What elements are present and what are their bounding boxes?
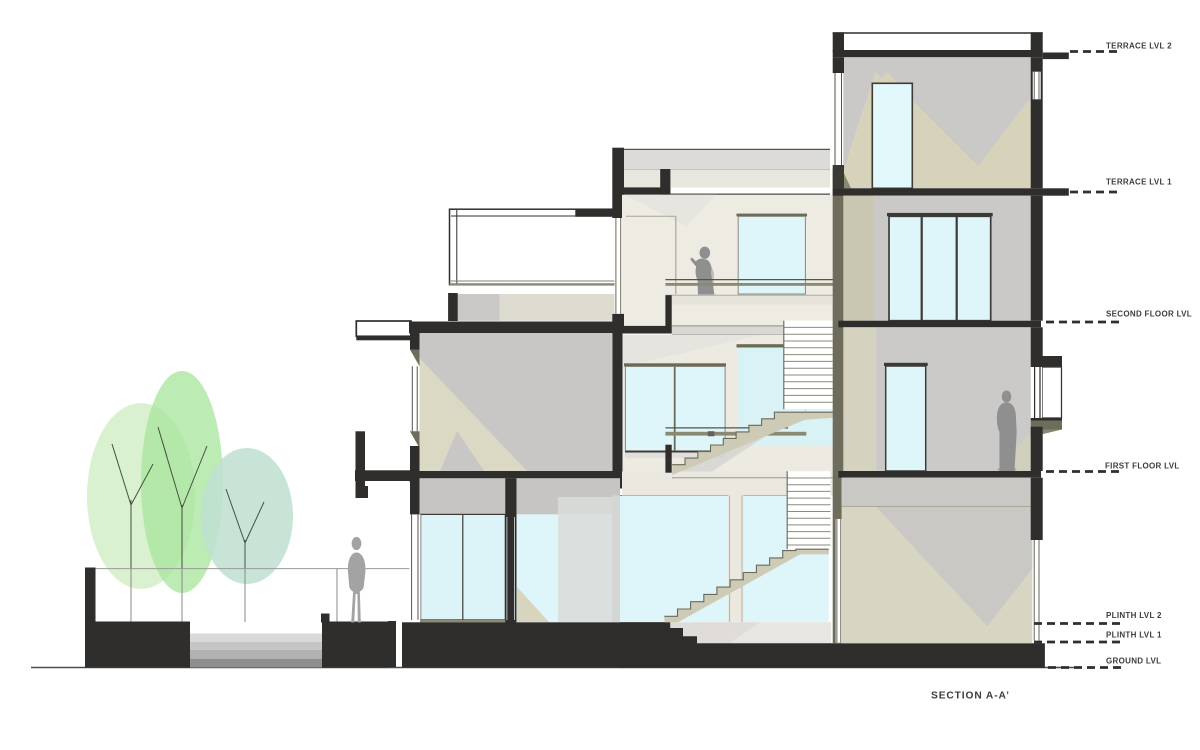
svg-text:GROUND LVL: GROUND LVL — [1106, 657, 1161, 666]
svg-text:SECOND FLOOR LVL: SECOND FLOOR LVL — [1106, 310, 1192, 319]
svg-text:FIRST FLOOR LVL: FIRST FLOOR LVL — [1105, 462, 1180, 471]
svg-text:TERRACE LVL 2: TERRACE LVL 2 — [1106, 42, 1172, 51]
svg-text:PLINTH LVL 2: PLINTH LVL 2 — [1106, 611, 1162, 620]
svg-text:TERRACE LVL 1: TERRACE LVL 1 — [1106, 178, 1172, 187]
svg-text:SECTION A-A’: SECTION A-A’ — [931, 691, 1010, 702]
svg-text:PLINTH LVL 1: PLINTH LVL 1 — [1106, 631, 1162, 640]
